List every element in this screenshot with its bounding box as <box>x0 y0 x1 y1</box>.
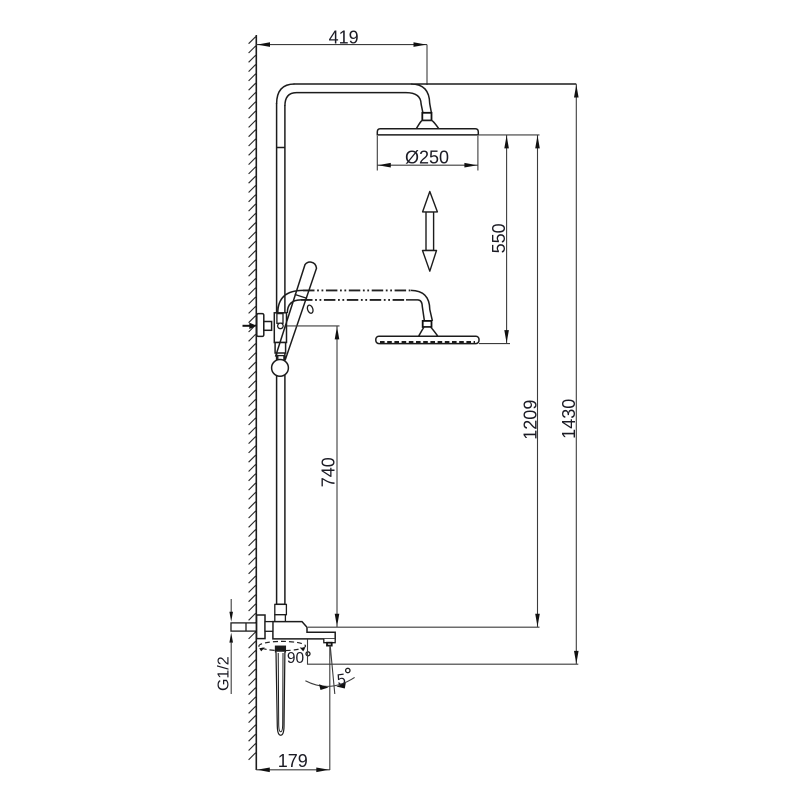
svg-text:90: 90 <box>287 650 305 667</box>
svg-text:1430: 1430 <box>559 399 579 439</box>
svg-text:740: 740 <box>318 457 338 487</box>
svg-text:550: 550 <box>489 223 509 253</box>
svg-text:G1/2: G1/2 <box>216 656 233 691</box>
svg-text:179: 179 <box>278 751 308 771</box>
svg-text:Ø250: Ø250 <box>405 147 449 167</box>
svg-text:1209: 1209 <box>520 400 540 440</box>
svg-text:419: 419 <box>329 27 359 47</box>
